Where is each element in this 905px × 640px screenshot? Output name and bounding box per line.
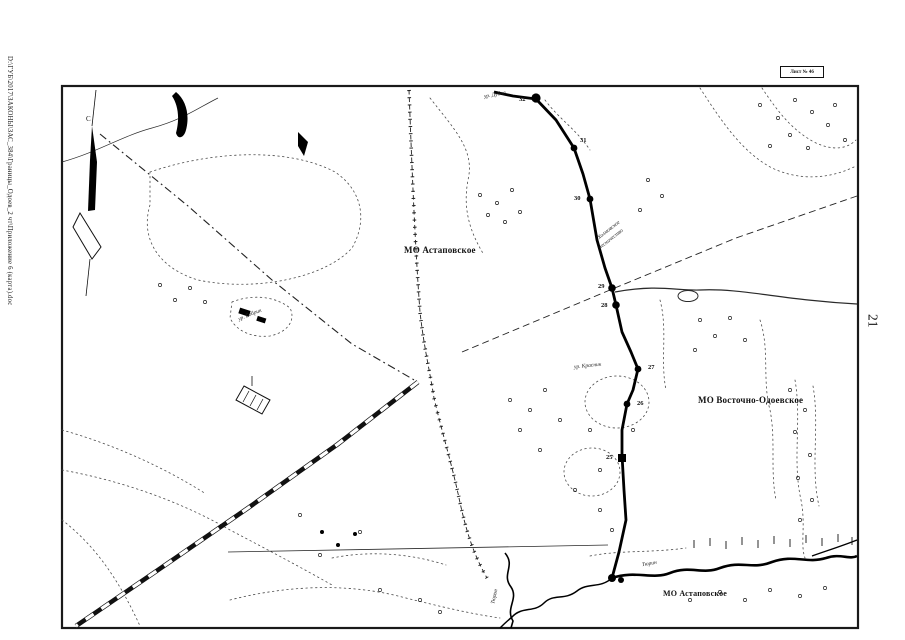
map-canvas: [0, 0, 905, 640]
municipal-boundary-line: [494, 92, 641, 583]
document-file-path: D:\ГУБ\2017\ЗАКОНЫ\ЗАС_384\Границы_Одоев…: [5, 56, 12, 396]
road-lines: [62, 98, 857, 552]
boundary-point-27: 27: [648, 365, 655, 372]
railway-line: [76, 382, 418, 626]
municipality-label-astapovskoye-west: МО Астаповское: [404, 246, 476, 255]
north-mark-label: С: [86, 116, 91, 123]
page-number: 21: [866, 314, 880, 328]
riverbank-tree-marks: [694, 534, 852, 549]
dashed-boundary-lines: [100, 90, 857, 578]
boundary-point-29: 29: [598, 284, 605, 291]
boundary-point-31: 31: [580, 138, 587, 145]
ravine-symbols: [73, 90, 308, 296]
map-frame: [62, 86, 858, 628]
boundary-point-32: 32: [519, 97, 526, 104]
scanned-map-page: D:\ГУБ\2017\ЗАКОНЫ\ЗАС_384\Границы_Одоев…: [0, 0, 905, 640]
boundary-point-25: 25: [606, 455, 613, 462]
settlement-symbols: [236, 308, 357, 547]
map-sheet-label: Лист № 46: [780, 66, 824, 78]
municipality-label-astapovskoye-south: МО Астаповское: [663, 590, 727, 598]
boundary-point-30: 30: [574, 196, 581, 203]
boundary-point-28: 28: [601, 303, 608, 310]
terrain-dot-symbols: [158, 98, 846, 613]
dotted-terrain-lines: [62, 88, 856, 626]
boundary-point-26: 26: [637, 401, 644, 408]
municipality-label-vostochno-odoyevskoye: МО Восточно-Одоевское: [698, 396, 803, 405]
